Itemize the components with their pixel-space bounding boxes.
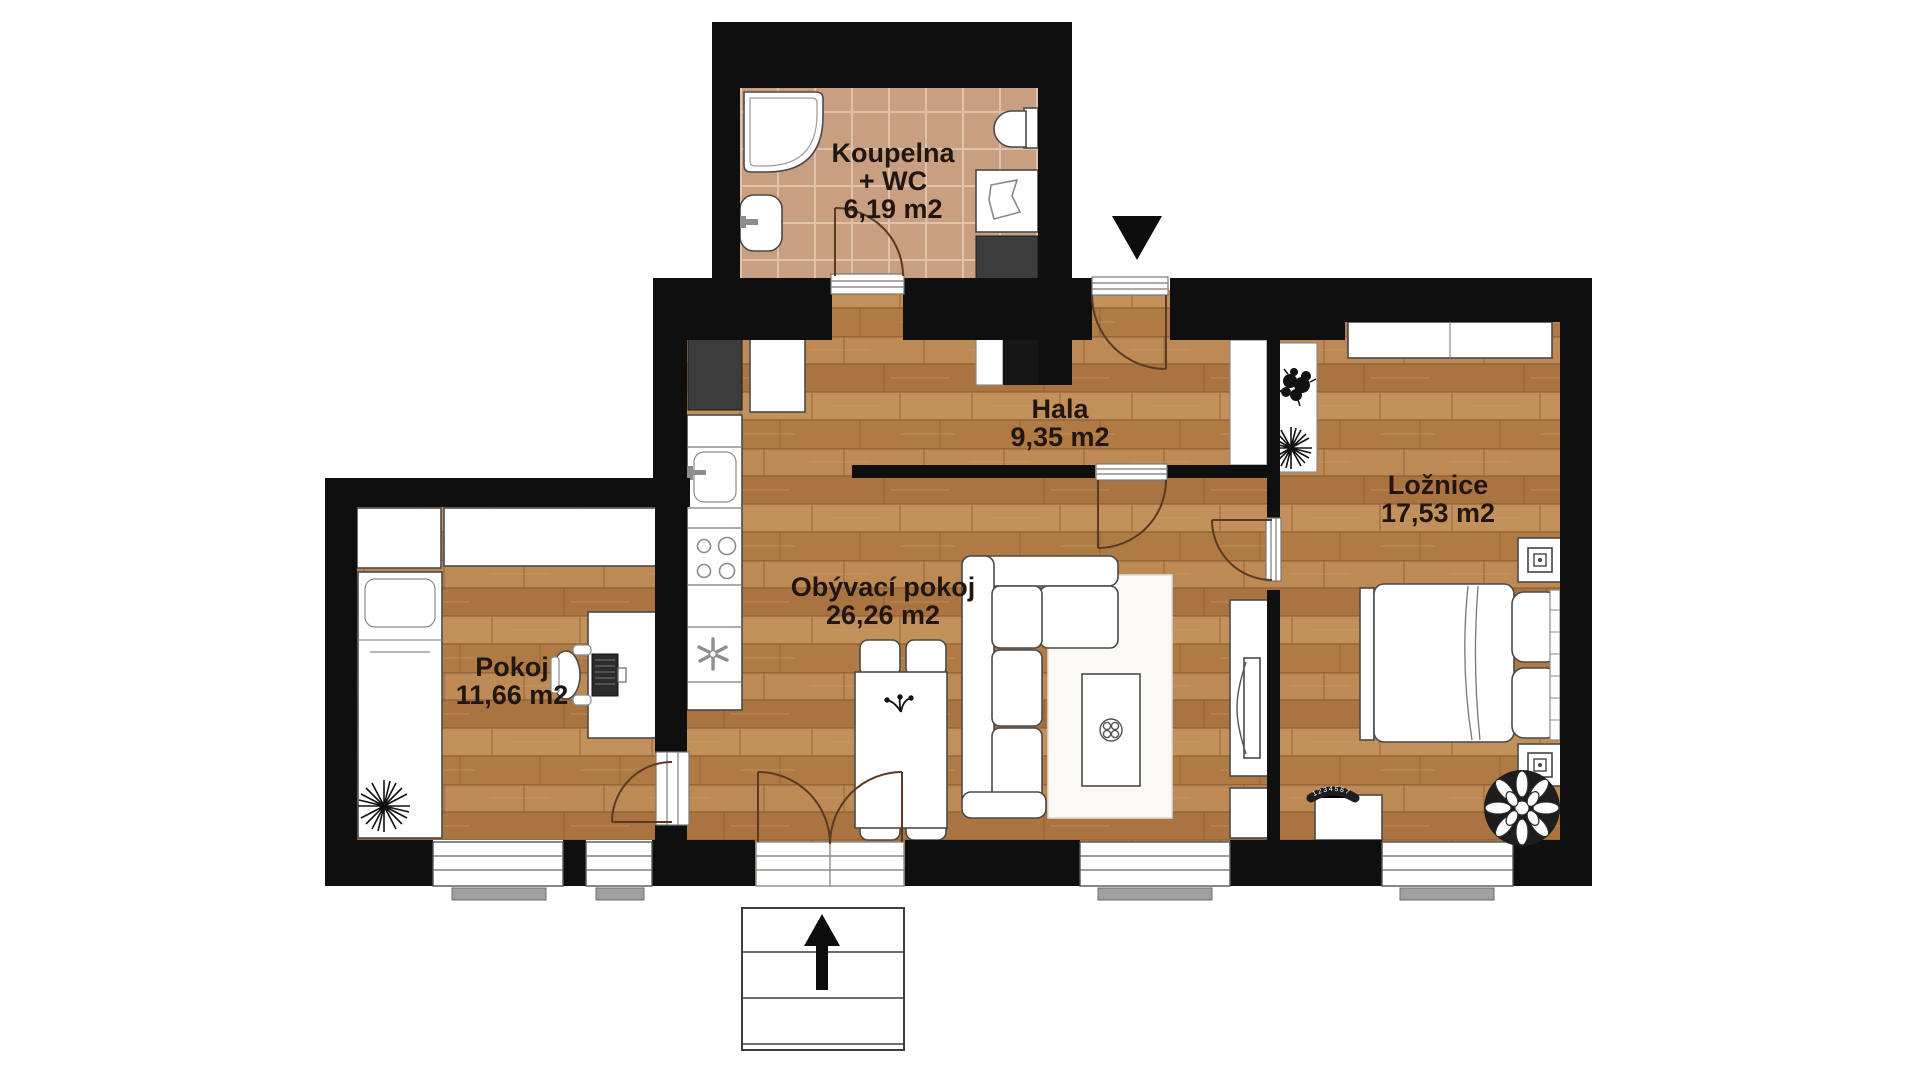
stairs	[742, 908, 904, 1050]
chair	[906, 640, 946, 676]
bottom-wall	[563, 840, 586, 886]
bathroom-door-threshold	[831, 274, 904, 294]
window	[586, 842, 652, 886]
koupelna-label: Koupelna	[831, 138, 955, 168]
balcony-double-door-threshold	[756, 842, 904, 886]
hala-bottom-wall	[1167, 465, 1267, 478]
washing-machine	[976, 170, 1038, 232]
left-wall	[653, 278, 687, 507]
kitchen-counter	[686, 415, 742, 710]
bed-board	[1360, 588, 1374, 740]
pokoj-right-wall	[655, 505, 687, 753]
bedroom-door-threshold	[1266, 518, 1281, 581]
entrance-door-threshold	[1092, 277, 1168, 295]
floor-plan-canvas: 1234567	[0, 0, 1920, 1080]
hala-area: 9,35 m2	[1010, 422, 1109, 452]
headboard	[1550, 590, 1560, 740]
kitchen-sink	[694, 452, 736, 502]
pillow	[365, 579, 435, 627]
cabinet	[1230, 788, 1272, 838]
koupelna-area: 6,19 m2	[843, 194, 942, 224]
bathroom-wall-left	[712, 22, 740, 282]
entrance-arrow	[1112, 216, 1162, 260]
window	[1080, 842, 1230, 886]
loznice-label: Ložnice	[1388, 470, 1489, 500]
kitchen-faucet-icon	[686, 466, 693, 480]
bottom-wall	[325, 840, 433, 886]
tv-bench	[1230, 600, 1272, 838]
pokoj-area: 11,66 m2	[456, 680, 569, 710]
pokoj-left-wall	[325, 478, 357, 886]
wardrobe	[444, 508, 656, 566]
obyvaci-pokoj-area: 26,26 m2	[826, 600, 940, 630]
pokoj-label: Pokoj	[475, 652, 549, 682]
flower-bush-icon	[1484, 770, 1560, 846]
coffee-table	[1082, 674, 1140, 786]
hala-bottom-wall	[852, 465, 1095, 478]
top-wall	[903, 278, 1092, 340]
dresser	[1315, 795, 1382, 840]
duct-shaft	[976, 236, 1038, 282]
koupelna-label2: + WC	[859, 166, 927, 196]
top-wall	[1170, 278, 1345, 340]
hala-door-threshold	[1096, 464, 1167, 480]
window	[1382, 842, 1513, 886]
bottom-wall	[1230, 840, 1382, 886]
hall-closet	[1230, 340, 1267, 465]
radiator	[596, 888, 644, 900]
window	[433, 842, 563, 886]
chair	[860, 640, 900, 676]
floor-plan-svg: 1234567	[0, 0, 1920, 1080]
tv-icon	[1244, 658, 1260, 758]
nightstand	[1518, 538, 1562, 582]
radiator	[452, 888, 546, 900]
duvet	[1374, 584, 1514, 742]
hala-label: Hala	[1031, 394, 1089, 424]
washbasin	[736, 195, 782, 251]
bedroom-wall	[1267, 590, 1280, 840]
bedroom-wall	[1267, 338, 1280, 518]
desk	[588, 612, 658, 738]
hall-cabinet	[976, 339, 1003, 385]
bathroom-wall-top	[712, 22, 1072, 88]
wardrobe	[357, 508, 441, 568]
radiator	[1400, 888, 1494, 900]
hall-shaft	[1003, 339, 1038, 385]
obyvaci-pokoj-label: Obývací pokoj	[791, 572, 976, 602]
top-wall	[1345, 278, 1592, 322]
right-wall	[1560, 278, 1592, 886]
bottom-wall	[905, 840, 1080, 886]
pokoj-top-wall	[325, 478, 690, 507]
kitchen-shaft	[688, 338, 742, 410]
bottom-wall	[652, 840, 755, 886]
fridge	[750, 338, 805, 412]
loznice-area: 17,53 m2	[1381, 498, 1495, 528]
radiator	[1098, 888, 1212, 900]
